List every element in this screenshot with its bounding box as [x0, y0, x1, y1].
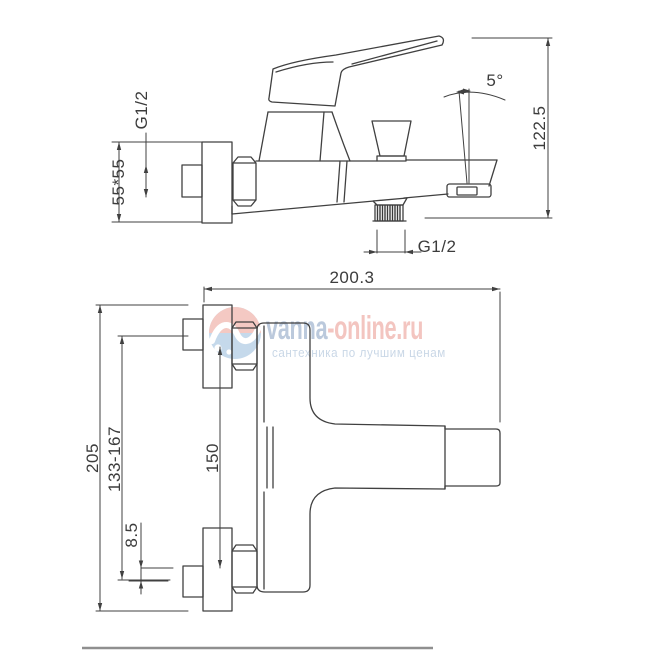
dim-g12-bottom-ext: [377, 230, 405, 253]
watermark: vanna-online.ru сантехника по лучшим цен…: [209, 307, 446, 360]
front-body-outline: [257, 323, 500, 592]
dim-inlet-range-label: 133-167: [105, 426, 124, 492]
dim-centers-label: 150: [203, 443, 222, 473]
diverter-knob: [372, 121, 411, 156]
brand-secondary-text: -online.ru: [327, 309, 423, 346]
dim-mounting-height-label: 205: [83, 443, 102, 473]
escutcheon-bottom: [203, 528, 232, 611]
spout-tip-slant: [489, 160, 497, 186]
svg-text:vanna-online.ru: vanna-online.ru: [266, 309, 423, 346]
diverter-knob-base: [377, 156, 406, 161]
dim-spout-angle-label: 5°: [486, 71, 503, 90]
wall-nipple-top: [183, 319, 203, 350]
wall-nipple-side: [182, 165, 202, 197]
dim-angle-arc: [444, 92, 505, 100]
aerator-inner: [457, 187, 477, 195]
watermark-tagline: сантехника по лучшим ценам: [272, 346, 446, 360]
body-inner-line: [320, 112, 324, 161]
brand-primary-text: vanna: [266, 309, 328, 346]
hex-nut-bottom: [232, 545, 257, 593]
logo-dot: [226, 349, 231, 354]
side-view-dimensions: G1/2 55*55 122.5 5° G1/2: [109, 38, 552, 256]
body-left-edge: [259, 112, 268, 161]
dim-escutcheon-size-label: 55*55: [109, 159, 128, 206]
outlet-thread-hatch: [378, 205, 401, 221]
wall-nipple-bottom: [183, 566, 203, 597]
watermark-brand: vanna-online.ru: [266, 309, 423, 346]
technical-drawing: vanna-online.ru сантехника по лучшим цен…: [0, 0, 650, 650]
tagline-text: сантехника по лучшим ценам: [272, 346, 446, 360]
escutcheon-side: [202, 142, 232, 223]
hex-nut-side: [233, 157, 256, 206]
dim-outlet-thread-label: G1/2: [418, 237, 457, 256]
dim-overall-height-label: 122.5: [530, 105, 549, 150]
deck-seam-lines: [337, 161, 347, 202]
side-view: [182, 36, 497, 223]
watermark-logo: [209, 307, 261, 359]
deck-bottom-edge: [232, 194, 448, 214]
dim-angle-lines: [459, 89, 469, 183]
handle-bevel-line: [276, 62, 333, 72]
product-drawing-page: vanna-online.ru сантехника по лучшим цен…: [0, 0, 650, 650]
spout-seam-lines: [267, 427, 273, 488]
dim-offset-label: 8.5: [122, 522, 141, 547]
dim-overall-length-label: 200.3: [329, 268, 374, 287]
dim-85-ticks: [129, 568, 173, 581]
outlet-neck: [373, 198, 407, 205]
dim-inlet-thread-label: G1/2: [132, 91, 151, 130]
outlet-thread-body: [375, 205, 403, 221]
body-right-edge: [332, 112, 350, 161]
